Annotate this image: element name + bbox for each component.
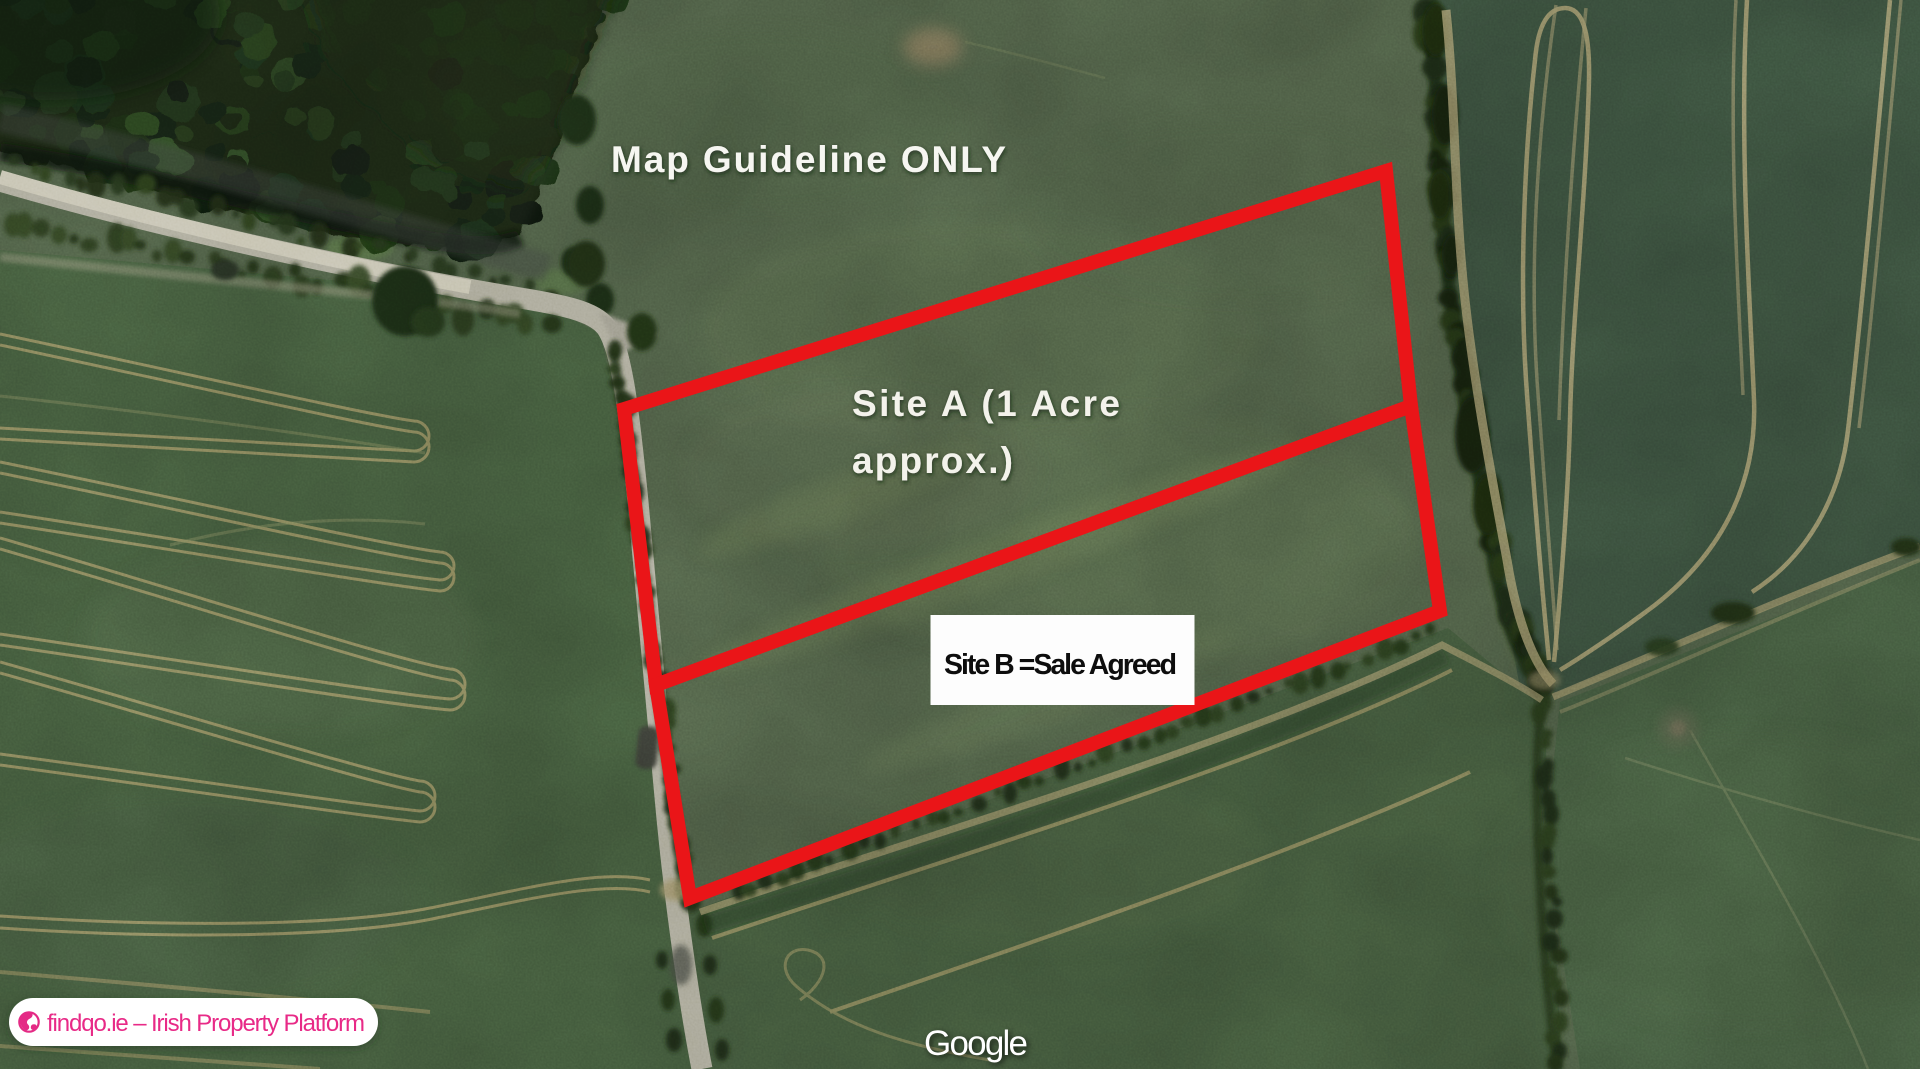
svg-text:Site B =Sale Agreed: Site B =Sale Agreed [944,649,1177,681]
svg-text:Site A (1 Acre: Site A (1 Acre [852,383,1120,424]
svg-text:Google: Google [924,1024,1028,1063]
svg-text:findqo.ie – Irish Property Pla: findqo.ie – Irish Property Platform [47,1010,365,1037]
svg-text:approx.): approx.) [852,440,1013,481]
svg-text:Map Guideline ONLY: Map Guideline ONLY [611,139,1006,180]
